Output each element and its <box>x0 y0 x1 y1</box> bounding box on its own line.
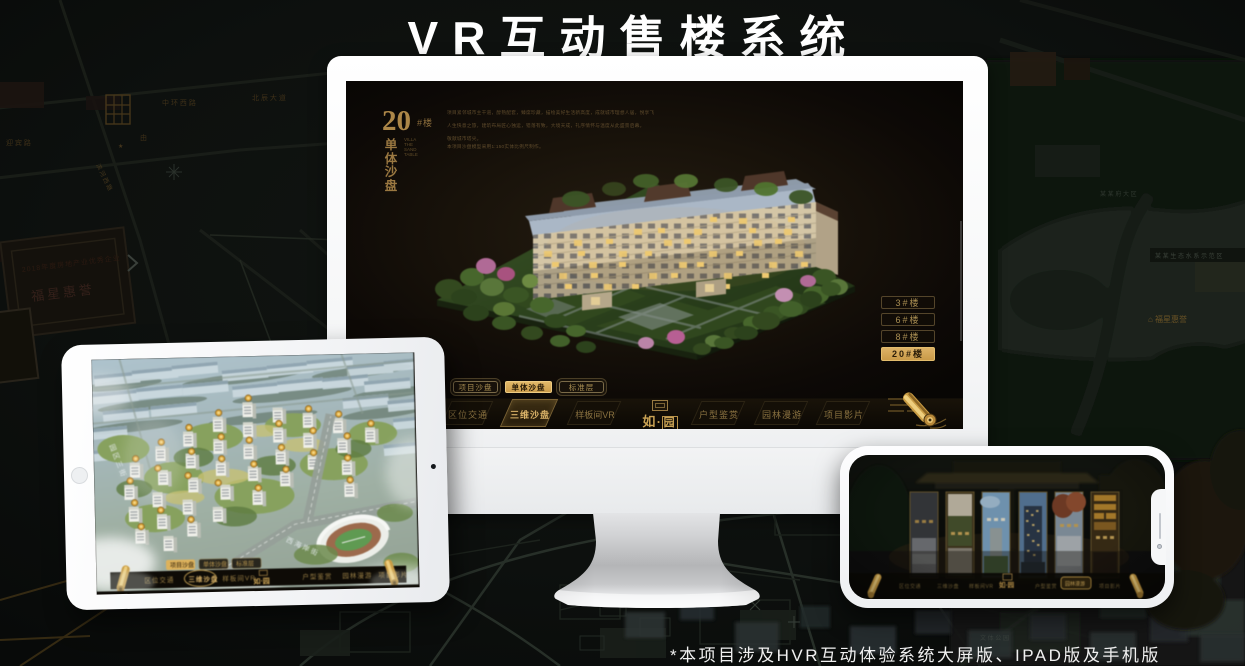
svg-text:⌂ 福星惠誉: ⌂ 福星惠誉 <box>1148 314 1187 324</box>
svg-text:如·园: 如·园 <box>253 576 270 585</box>
svg-text:某 某 府 大 区: 某 某 府 大 区 <box>1100 190 1137 198</box>
svg-text:北 辰 大 道: 北 辰 大 道 <box>252 93 286 102</box>
svg-text:某 某 生 态 水 系 示 范 区: 某 某 生 态 水 系 示 范 区 <box>1155 252 1222 260</box>
svg-text:由: 由 <box>140 133 147 142</box>
svg-text:★: ★ <box>118 143 123 150</box>
svg-text:迎 宾 路: 迎 宾 路 <box>6 138 31 147</box>
svg-text:中 环 西 路: 中 环 西 路 <box>162 98 196 107</box>
